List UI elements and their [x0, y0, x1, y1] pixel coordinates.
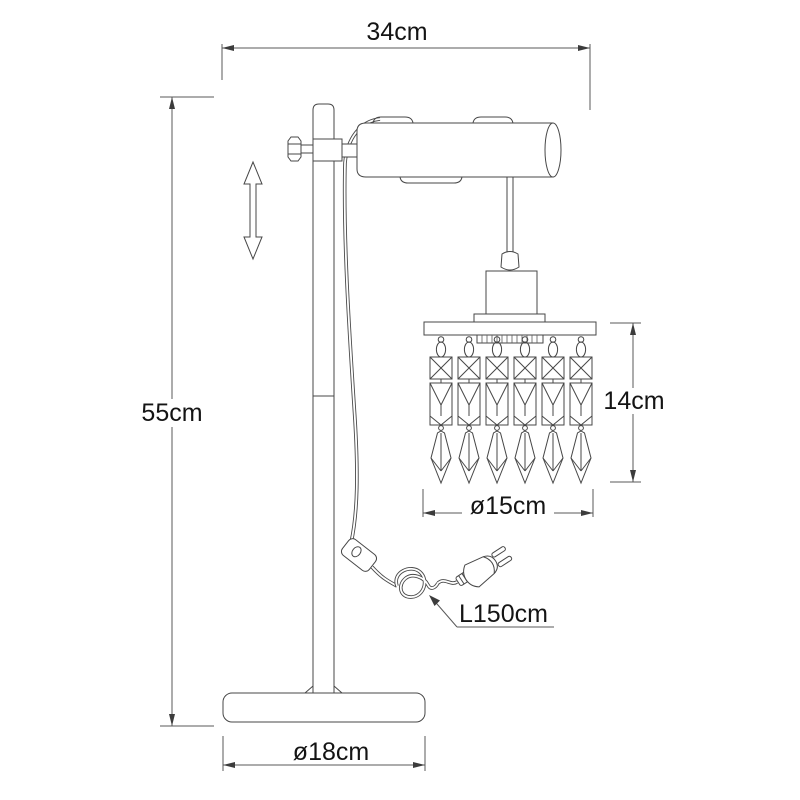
dim-label-15cm: ø15cm: [470, 492, 546, 520]
crystal-strand: [486, 337, 508, 483]
arrowhead-right-icon: [413, 762, 425, 768]
dim-shade-diameter: ø15cm: [423, 489, 593, 520]
crystal-strand: [514, 337, 536, 483]
socket-flange: [474, 314, 545, 322]
ribbed-ring-lines: [482, 335, 537, 343]
arrowhead-right-icon: [578, 45, 590, 51]
dim-label-14cm: 14cm: [603, 387, 664, 415]
cable-length-callout: L150cm: [429, 595, 554, 628]
arrowhead-top-icon: [169, 97, 175, 109]
lamp-base: [223, 693, 425, 722]
height-adjust-arrow-icon: [244, 162, 262, 259]
clamp-stub: [342, 144, 357, 157]
cable-length-label: L150cm: [459, 600, 548, 628]
arrowhead-bottom-icon: [169, 714, 175, 726]
arrowhead-left-icon: [223, 762, 235, 768]
power-cable: [345, 119, 380, 543]
dim-width-top: 34cm: [222, 18, 590, 110]
crystal-strand: [570, 337, 592, 483]
dim-pendant-drop: 14cm: [603, 323, 665, 482]
head-cylinder: [357, 117, 561, 183]
clamp-block: [313, 139, 342, 161]
lamp-socket: [486, 271, 537, 317]
arrowhead-right-icon: [581, 510, 593, 516]
dim-label-55cm: 55cm: [141, 399, 202, 427]
extension-lines: [222, 44, 590, 110]
cylinder-bottom-tab: [400, 177, 462, 183]
lamp-pole: [305, 104, 342, 693]
dim-label-34cm: 34cm: [366, 18, 427, 46]
plug-pin-top: [491, 546, 506, 558]
cylinder-end-cap: [545, 123, 561, 177]
technical-drawing-canvas: 34cm 55cm 14cm ø15cm ø18cm: [0, 0, 800, 800]
cord-adjuster: [501, 252, 519, 271]
plug-pin-bottom: [497, 556, 512, 568]
power-plug: [459, 542, 515, 591]
crystal-strand: [458, 337, 480, 483]
crystal-disc: [424, 322, 596, 335]
dim-height-total: 55cm: [137, 97, 214, 726]
pendant-assembly: [424, 177, 596, 343]
arrowhead-top-icon: [630, 323, 636, 335]
cylinder-body: [357, 123, 553, 177]
pole-outline: [313, 104, 334, 693]
hex-knob: [288, 137, 301, 161]
arrowhead-left-icon: [423, 510, 435, 516]
cylinder-top-tab-right: [473, 117, 513, 123]
dim-base-diameter: ø18cm: [223, 736, 425, 771]
lamp-dimension-diagram: 34cm 55cm 14cm ø15cm ø18cm: [0, 0, 800, 800]
arrowhead-bottom-icon: [630, 470, 636, 482]
arrowhead-left-icon: [222, 45, 234, 51]
clamp-assembly: [288, 137, 357, 161]
cord-and-plug: [372, 542, 515, 597]
threaded-shaft: [301, 145, 313, 153]
crystal-strands: [430, 337, 592, 483]
pendant-cord: [507, 177, 513, 254]
crystal-strand: [542, 337, 564, 483]
leader-arrowhead-icon: [429, 595, 440, 606]
crystal-strand: [430, 337, 452, 483]
dim-label-18cm: ø18cm: [293, 738, 369, 766]
